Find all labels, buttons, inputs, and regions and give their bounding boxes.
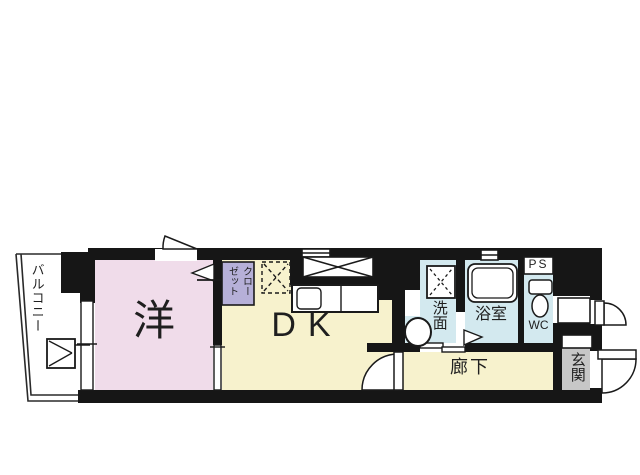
floor-plan-drawing [0, 0, 640, 475]
washroom-label: 洗面 [431, 300, 447, 330]
opening-top-door [155, 249, 197, 261]
washing-machine-space [427, 266, 455, 298]
washbasin [405, 318, 431, 346]
wall-washroom-left [392, 290, 405, 348]
wall-washroom-top [392, 260, 420, 290]
wall-entrance-divider [553, 336, 562, 392]
dining-kitchen-label: DK [222, 308, 392, 344]
wall-left-column [61, 252, 95, 293]
meter-door-arc [604, 303, 626, 325]
wall-wash-bath [456, 260, 465, 312]
meter-box-niche [558, 298, 590, 323]
floor-plan: バルコニー 洋 クロー ゼット DK 洗面 浴室 PS WC 廊下 玄関 [0, 0, 640, 475]
entrance-door-leaf [598, 350, 636, 359]
entrance-label: 玄関 [569, 352, 585, 382]
wall-kitchen-left [290, 260, 303, 285]
washroom-sliding-door-b [442, 347, 465, 352]
pipe-space-label: PS [524, 258, 553, 271]
closet-label-left: ゼット [226, 266, 237, 296]
bathroom-label: 浴室 [462, 307, 520, 324]
toilet-label: WC [524, 319, 553, 332]
entrance-door-arc [602, 359, 636, 393]
wall-bottom [78, 390, 602, 403]
wall-right-block-mid [553, 323, 590, 336]
room-divider-door [214, 345, 221, 390]
shoe-cabinet [562, 335, 592, 348]
opening-washroom [405, 290, 420, 316]
top-door-arc [163, 236, 197, 249]
corridor-label: 廊下 [400, 358, 540, 377]
closet-label-right: クロー [240, 266, 251, 296]
wall-right-block-upper [553, 248, 590, 296]
western-room-label: 洋 [95, 299, 213, 343]
wall-corridor-top-right [465, 343, 553, 352]
bathtub [468, 264, 517, 302]
meter-door-leaf [595, 301, 604, 325]
balcony-label: バルコニー [30, 263, 44, 333]
